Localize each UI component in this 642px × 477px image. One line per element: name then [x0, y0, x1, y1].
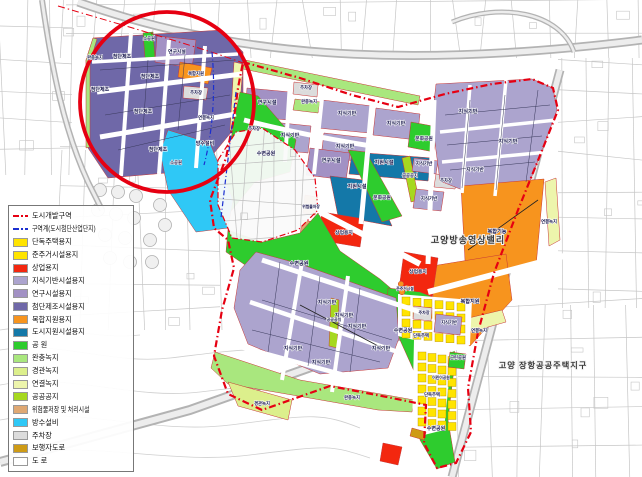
map-graphic	[424, 299, 432, 307]
parcel-label: 소공원	[143, 35, 155, 42]
parcel-label: 지원시설	[347, 182, 366, 190]
map-graphic	[446, 335, 454, 343]
legend-item: 방수설비	[13, 416, 130, 429]
parcel-label: 지식기반	[441, 319, 457, 326]
parcel-label: 복합지원	[460, 297, 479, 305]
parcel-label: 상업용지	[409, 268, 427, 275]
legend-item: 복합지원용지	[13, 313, 130, 326]
legend-item: 도 로	[13, 455, 130, 468]
legend-panel: 도시개발구역구역계(도시첨단산업단지)단독주택용지준주거시설용지상업용지지식기반…	[8, 205, 134, 472]
map-graphic	[428, 354, 436, 362]
parcel-label: 지식기반	[498, 137, 517, 145]
legend-item: 보행자도로	[13, 442, 130, 455]
legend-item: 첨단제조시설용지	[13, 300, 130, 313]
legend-item-label: 연결녹지	[32, 379, 58, 389]
legend-item-label: 주차장	[32, 431, 52, 441]
legend-item-label: 도시개발구역	[32, 211, 72, 221]
legend-item-label: 완충녹지	[32, 353, 58, 363]
map-graphic	[380, 443, 402, 465]
parcel-label: 지식기반	[466, 166, 484, 173]
map-graphic	[438, 399, 446, 407]
parcel-label: 지식기반	[348, 323, 367, 330]
map-graphic	[438, 366, 446, 374]
legend-swatch	[13, 276, 28, 285]
legend-item-label: 경관녹지	[32, 366, 58, 376]
parcel-label: 첨단제조	[113, 53, 132, 60]
legend-item-label: 보행자도로	[32, 443, 65, 453]
legend-item: 완충녹지	[13, 352, 130, 365]
legend-item: 연구시설용지	[13, 287, 130, 300]
legend-item: 공공공지	[13, 390, 130, 403]
map-graphic	[457, 336, 465, 344]
map-graphic	[154, 199, 167, 212]
legend-item: 단독주택용지	[13, 236, 130, 249]
parcel-label: 주차장	[418, 309, 429, 315]
legend-item-label: 공 원	[32, 340, 47, 350]
parcel-label: 첨단제조	[141, 73, 160, 80]
map-graphic	[130, 190, 143, 203]
map-graphic	[418, 352, 426, 360]
parcel-label: 완충녹지	[344, 394, 360, 401]
legend-swatch	[13, 457, 28, 466]
legend-item-label: 상업용지	[32, 263, 58, 273]
map-graphic	[428, 398, 436, 406]
urban-plan-map-screenshot: { "legend": { "items": [ {"type":"line",…	[0, 0, 642, 477]
map-graphic	[146, 256, 159, 269]
legend-item-label: 단독주택용지	[32, 237, 72, 247]
legend-item: 준주거시설용지	[13, 249, 130, 262]
legend-item-label: 위험물저장 및 처리시설	[32, 405, 90, 415]
parcel-label: 연구시설	[168, 48, 186, 55]
parcel-label: 단독주택	[424, 391, 440, 398]
parcel-label: 복합기능	[487, 227, 506, 235]
legend-swatch	[13, 367, 28, 376]
parcel-label: 지식기반	[387, 120, 406, 127]
parcel-label: 첨단제조	[149, 146, 168, 153]
legend-item: 주차장	[13, 429, 130, 442]
parcel-label: 지식기반	[318, 299, 337, 306]
legend-item-label: 도시지원시설용지	[32, 327, 85, 337]
legend-item-label: 첨단제조시설용지	[32, 302, 85, 312]
parcel-label: 방수설비	[196, 140, 215, 147]
parcel-label: 연결녹지	[198, 114, 214, 121]
legend-item: 공 원	[13, 339, 130, 352]
legend-item: 지식기반시설용지	[13, 274, 130, 287]
parcel-label: 근린공원	[450, 354, 466, 361]
legend-item: 경관녹지	[13, 365, 130, 378]
legend-item: 도시개발구역	[13, 210, 130, 223]
parcel-label: 수변공원	[257, 150, 276, 157]
legend-item-label: 연구시설용지	[32, 289, 72, 299]
map-graphic	[438, 355, 446, 363]
district-label: 고양방송영상밸리	[431, 234, 505, 245]
map-graphic	[428, 409, 436, 417]
legend-swatch	[13, 289, 28, 298]
map-graphic	[438, 410, 446, 418]
map-graphic	[112, 186, 125, 199]
legend-item-label: 준주거시설용지	[32, 250, 78, 260]
map-graphic	[413, 298, 421, 306]
parcel-label: 지식기반	[312, 359, 331, 366]
map-graphic	[398, 281, 404, 287]
legend-item-label: 복합지원용지	[32, 315, 72, 325]
parcel-label: 첨단제조	[91, 86, 110, 93]
parcel-label: 소공원	[170, 159, 182, 166]
legend-item-label: 방수설비	[32, 418, 58, 428]
map-graphic	[446, 302, 454, 310]
legend-item-label: 구역계(도시첨단산업단지)	[32, 224, 96, 234]
legend-swatch	[13, 328, 28, 337]
legend-line-sample	[13, 225, 28, 234]
map-graphic	[402, 297, 410, 305]
map-graphic	[448, 401, 456, 409]
parcel-label: 문화공원	[415, 135, 433, 142]
map-graphic	[13, 228, 28, 230]
map-graphic	[159, 219, 172, 232]
parcel-label: 지식기반	[421, 195, 438, 202]
parcel-label: 문화공원	[373, 194, 391, 201]
parcel-label: 완충녹지	[301, 98, 317, 105]
legend-swatch	[13, 392, 28, 401]
parcel-label: 연결녹지	[541, 218, 557, 225]
parcel-label: 연구시설	[257, 98, 276, 106]
map-graphic	[144, 234, 157, 247]
parcel-label: 위험물저장	[302, 204, 320, 209]
legend-item-label: 지식기반시설용지	[32, 276, 85, 286]
parcel-label: 지식기반	[284, 345, 303, 352]
map-graphic	[428, 365, 436, 373]
parcel-label: 연결녹지	[471, 327, 487, 334]
parcel-label: 지식기반	[338, 110, 357, 117]
legend-swatch	[13, 431, 28, 440]
map-graphic	[413, 320, 421, 328]
legend-item: 위험물저장 및 처리시설	[13, 403, 130, 416]
parcel-label: 주차장	[440, 177, 452, 184]
parcel-label: 주차장	[300, 84, 312, 91]
map-graphic	[448, 423, 456, 431]
parcel-label: 지식기반	[281, 132, 300, 139]
parcel-label: 주차장	[190, 89, 202, 96]
map-graphic	[418, 363, 426, 371]
parcel-label: 단독주택	[413, 332, 429, 339]
parcel-label: 지식기반	[336, 143, 355, 150]
parcel-label: 수변공원	[394, 327, 413, 334]
legend-line-sample	[13, 212, 28, 221]
legend-item-label: 공공공지	[32, 392, 58, 402]
map-graphic	[402, 319, 410, 327]
map-graphic	[435, 334, 443, 342]
parcel-label: 공공공지	[327, 316, 342, 322]
map-graphic	[13, 215, 28, 217]
map-graphic	[435, 301, 443, 309]
legend-item: 연결녹지	[13, 378, 130, 391]
legend-item: 도시지원시설용지	[13, 326, 130, 339]
parcel-label: 지식기반	[372, 345, 391, 352]
legend-swatch	[13, 264, 28, 273]
district-label: 고양 장항공공주택지구	[499, 360, 588, 370]
parcel-label: 지식기반	[458, 107, 477, 115]
parcel-label: 어린이공원	[432, 375, 450, 380]
legend-swatch	[13, 354, 28, 363]
legend-item: 상업용지	[13, 262, 130, 275]
legend-swatch	[13, 315, 28, 324]
legend-swatch	[13, 238, 28, 247]
parcel-label: 준주거시설	[396, 286, 414, 291]
parcel-label: 주차장	[248, 125, 260, 132]
legend-swatch	[13, 444, 28, 453]
parcel-label: 완충녹지	[87, 54, 103, 61]
parcel-label: 수변공원	[289, 259, 308, 267]
legend-item: 구역계(도시첨단산업단지)	[13, 223, 130, 236]
legend-swatch	[13, 405, 28, 414]
map-graphic	[448, 368, 456, 376]
map-graphic	[448, 412, 456, 420]
legend-item-label: 도 로	[32, 456, 47, 466]
map-graphic	[448, 390, 456, 398]
parcel-label: 연구시설	[321, 156, 340, 164]
map-graphic	[418, 374, 426, 382]
parcel-label: 공공공지	[402, 172, 418, 179]
map-graphic	[424, 321, 432, 329]
legend-swatch	[13, 251, 28, 260]
parcel-label: 경관녹지	[254, 400, 270, 407]
legend-swatch	[13, 380, 28, 389]
parcel-label: 지식기반	[416, 160, 433, 167]
parcel-label: 수변공원	[427, 425, 446, 432]
parcel-label: 지원시설	[374, 158, 393, 166]
parcel-label: 상업용지	[335, 229, 353, 236]
legend-swatch	[13, 341, 28, 350]
parcel-label: 복합지원	[188, 70, 204, 77]
legend-swatch	[13, 418, 28, 427]
parcel-label: 첨단제조	[134, 108, 153, 115]
legend-swatch	[13, 302, 28, 311]
